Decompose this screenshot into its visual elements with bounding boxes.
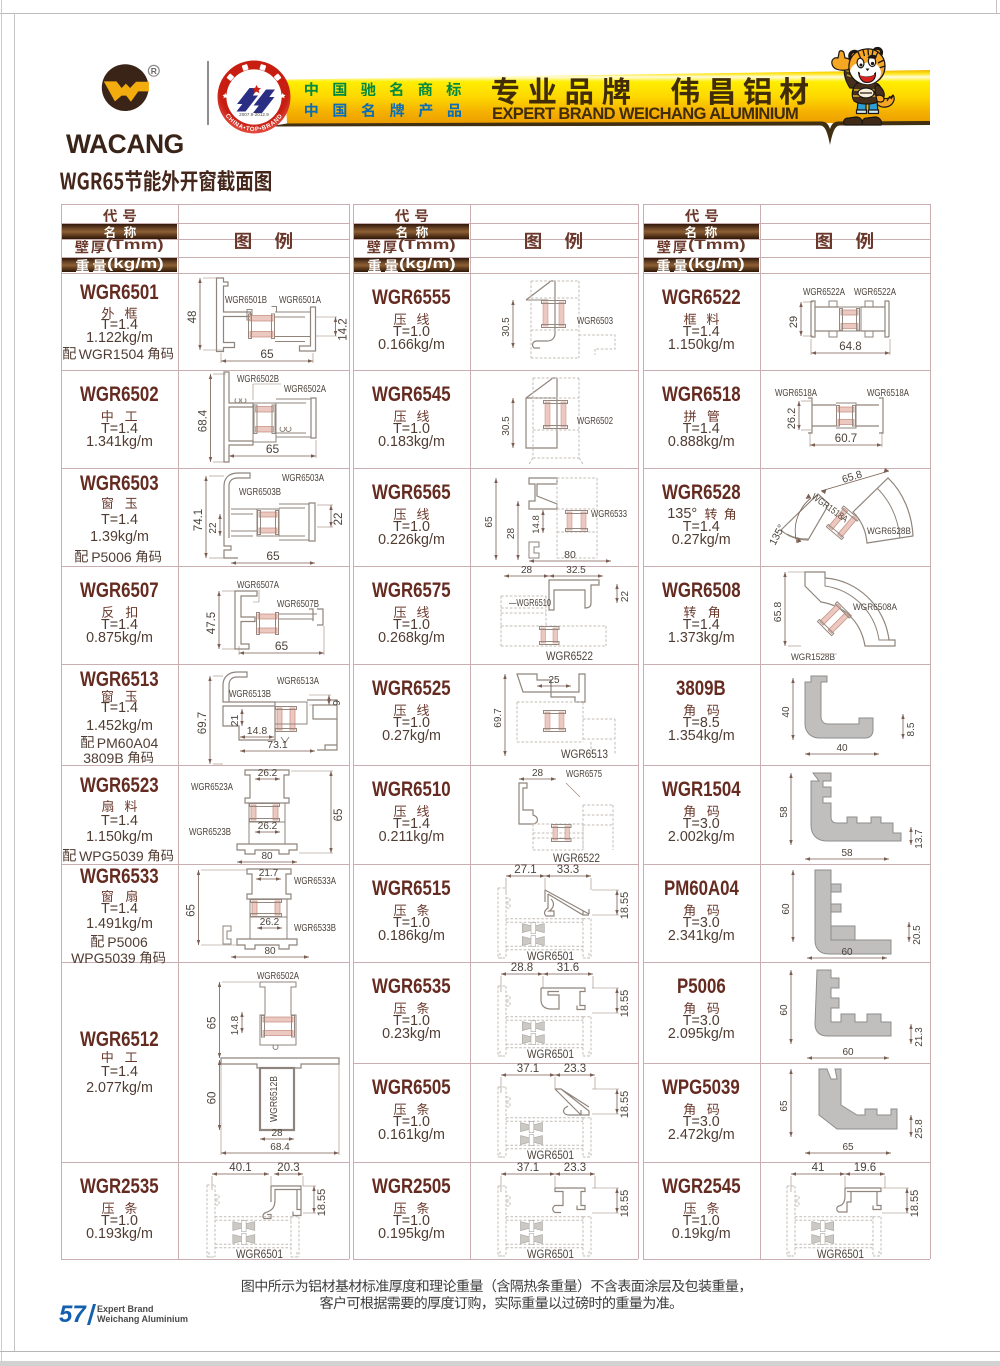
svg-text:65: 65	[484, 516, 495, 528]
svg-text:WGR6528B: WGR6528B	[867, 526, 911, 537]
svg-text:40: 40	[836, 743, 848, 754]
svg-text:WGR6508A: WGR6508A	[853, 602, 898, 613]
svg-text:23.3: 23.3	[563, 1162, 585, 1174]
svg-text:65: 65	[206, 1016, 218, 1029]
svg-text:60: 60	[779, 1004, 790, 1016]
svg-text:WGR6522A: WGR6522A	[803, 286, 845, 298]
svg-text:WGR6522: WGR6522	[553, 851, 600, 864]
svg-text:26.2: 26.2	[257, 768, 277, 779]
svg-text:28: 28	[506, 528, 517, 540]
svg-text:23.3: 23.3	[563, 1063, 585, 1075]
svg-text:60.7: 60.7	[834, 433, 856, 445]
svg-text:WGR6533A: WGR6533A	[294, 876, 336, 887]
svg-text:18.55: 18.55	[619, 1190, 631, 1218]
svg-text:WGR6503: WGR6503	[577, 315, 613, 327]
svg-text:WGR6501: WGR6501	[817, 1247, 864, 1259]
svg-text:68.4: 68.4	[270, 1142, 290, 1153]
svg-text:WGR6501: WGR6501	[527, 1047, 574, 1061]
svg-text:37.1: 37.1	[516, 1162, 538, 1174]
svg-text:65: 65	[266, 549, 280, 563]
svg-text:WGR6513B: WGR6513B	[229, 688, 271, 700]
svg-text:73.1: 73.1	[267, 739, 288, 751]
svg-text:14.2: 14.2	[337, 318, 348, 340]
svg-text:WGR6513: WGR6513	[561, 747, 608, 761]
svg-text:60: 60	[841, 947, 853, 958]
svg-text:65: 65	[779, 1100, 790, 1112]
svg-text:18.55: 18.55	[619, 989, 631, 1017]
svg-text:64.8: 64.8	[839, 341, 861, 353]
svg-text:69.7: 69.7	[493, 708, 504, 728]
svg-text:31.6: 31.6	[556, 962, 578, 974]
svg-text:30.5: 30.5	[501, 416, 512, 436]
svg-text:2007.9-2012.9: 2007.9-2012.9	[239, 112, 269, 117]
svg-text:60: 60	[781, 903, 792, 915]
svg-text:WGR6501: WGR6501	[236, 1247, 283, 1259]
svg-text:60: 60	[206, 1091, 218, 1104]
svg-text:—WGR6510: —WGR6510	[509, 598, 551, 609]
svg-text:28.8: 28.8	[510, 962, 532, 974]
svg-text:80: 80	[264, 946, 276, 957]
svg-text:25.8: 25.8	[914, 1118, 925, 1138]
svg-text:65: 65	[274, 639, 288, 653]
svg-text:48: 48	[187, 310, 199, 323]
svg-text:22: 22	[208, 522, 219, 534]
svg-text:60: 60	[842, 1047, 854, 1058]
svg-text:65.8: 65.8	[772, 601, 784, 622]
svg-text:58: 58	[841, 848, 853, 859]
svg-text:29: 29	[788, 315, 800, 327]
svg-text:WGR6502B: WGR6502B	[237, 373, 279, 385]
svg-text:41: 41	[811, 1162, 824, 1174]
svg-text:21.7: 21.7	[258, 868, 278, 879]
svg-text:R: R	[151, 66, 157, 76]
svg-text:80: 80	[261, 851, 273, 862]
svg-text:WGR6502A: WGR6502A	[257, 970, 299, 982]
svg-text:WGR6523A: WGR6523A	[191, 782, 233, 793]
svg-text:18.55: 18.55	[619, 892, 631, 920]
svg-text:28: 28	[520, 566, 532, 576]
svg-text:22: 22	[333, 513, 345, 526]
svg-text:WGR6533B: WGR6533B	[294, 923, 336, 934]
svg-text:30.5: 30.5	[501, 316, 512, 336]
svg-text:65.8: 65.8	[840, 468, 863, 485]
svg-text:19.6: 19.6	[853, 1162, 875, 1174]
svg-text:13.7: 13.7	[914, 829, 925, 849]
svg-text:47.5: 47.5	[206, 611, 218, 633]
svg-text:WGR6501: WGR6501	[527, 1247, 574, 1259]
svg-text:WGR6522A: WGR6522A	[854, 286, 896, 298]
svg-text:22: 22	[620, 590, 631, 602]
svg-text:40.1: 40.1	[229, 1162, 251, 1174]
svg-text:65: 65	[265, 442, 279, 456]
svg-text:WGR6518A: WGR6518A	[867, 387, 909, 399]
svg-text:WGR6501A: WGR6501A	[279, 294, 321, 306]
svg-text:40: 40	[781, 706, 792, 718]
svg-text:WGR6512B: WGR6512B	[268, 1076, 280, 1122]
svg-text:65: 65	[185, 904, 197, 917]
svg-text:33.3: 33.3	[556, 864, 578, 876]
svg-text:20.3: 20.3	[277, 1162, 299, 1174]
svg-text:28: 28	[271, 1128, 283, 1139]
svg-text:21.3: 21.3	[914, 1026, 925, 1046]
svg-text:65: 65	[260, 347, 274, 361]
svg-text:14.8: 14.8	[230, 1015, 241, 1035]
svg-text:WGR6501: WGR6501	[527, 949, 574, 962]
svg-text:WGR6501B: WGR6501B	[225, 294, 267, 306]
svg-text:8.5: 8.5	[906, 722, 917, 736]
svg-text:WGR6513A: WGR6513A	[277, 675, 319, 687]
svg-text:WGR6575: WGR6575	[566, 769, 602, 780]
svg-text:80: 80	[564, 549, 576, 561]
svg-text:14.8: 14.8	[246, 725, 267, 737]
svg-text:21: 21	[229, 715, 241, 727]
svg-text:WGR6518A: WGR6518A	[775, 387, 817, 399]
svg-text:32.5: 32.5	[566, 566, 586, 576]
svg-text:WGR6503A: WGR6503A	[282, 472, 324, 484]
svg-text:27.1: 27.1	[514, 864, 536, 876]
svg-text:65: 65	[842, 1142, 854, 1153]
svg-text:68.4: 68.4	[197, 409, 209, 432]
svg-text:WGR6502: WGR6502	[577, 415, 613, 427]
svg-text:WGR6501: WGR6501	[527, 1148, 574, 1162]
svg-text:14.8: 14.8	[531, 515, 542, 534]
svg-text:69.7: 69.7	[197, 712, 209, 734]
svg-text:9: 9	[331, 700, 343, 706]
svg-text:25: 25	[548, 675, 560, 686]
svg-text:28: 28	[531, 768, 543, 779]
svg-text:18.55: 18.55	[316, 1189, 328, 1217]
svg-text:WGR6507B: WGR6507B	[277, 598, 319, 610]
svg-text:WGR6503B: WGR6503B	[239, 486, 281, 498]
svg-text:18.55: 18.55	[909, 1190, 921, 1218]
svg-text:WGR6522: WGR6522	[546, 649, 593, 663]
svg-text:26.2: 26.2	[257, 821, 277, 832]
svg-text:37.1: 37.1	[516, 1063, 538, 1075]
svg-text:26.2: 26.2	[786, 408, 798, 429]
svg-text:WGR6523B: WGR6523B	[189, 827, 231, 838]
svg-text:WGR6502A: WGR6502A	[284, 383, 326, 395]
svg-text:26.2: 26.2	[259, 917, 279, 928]
svg-text:WGR6533: WGR6533	[591, 508, 627, 520]
svg-text:74.1: 74.1	[193, 509, 205, 531]
svg-text:65: 65	[333, 809, 345, 822]
svg-text:20.5: 20.5	[912, 925, 923, 945]
svg-text:WGR1528B: WGR1528B	[791, 652, 835, 663]
svg-text:18.55: 18.55	[619, 1090, 631, 1118]
svg-text:58: 58	[779, 806, 790, 818]
svg-text:WGR6507A: WGR6507A	[237, 579, 279, 591]
